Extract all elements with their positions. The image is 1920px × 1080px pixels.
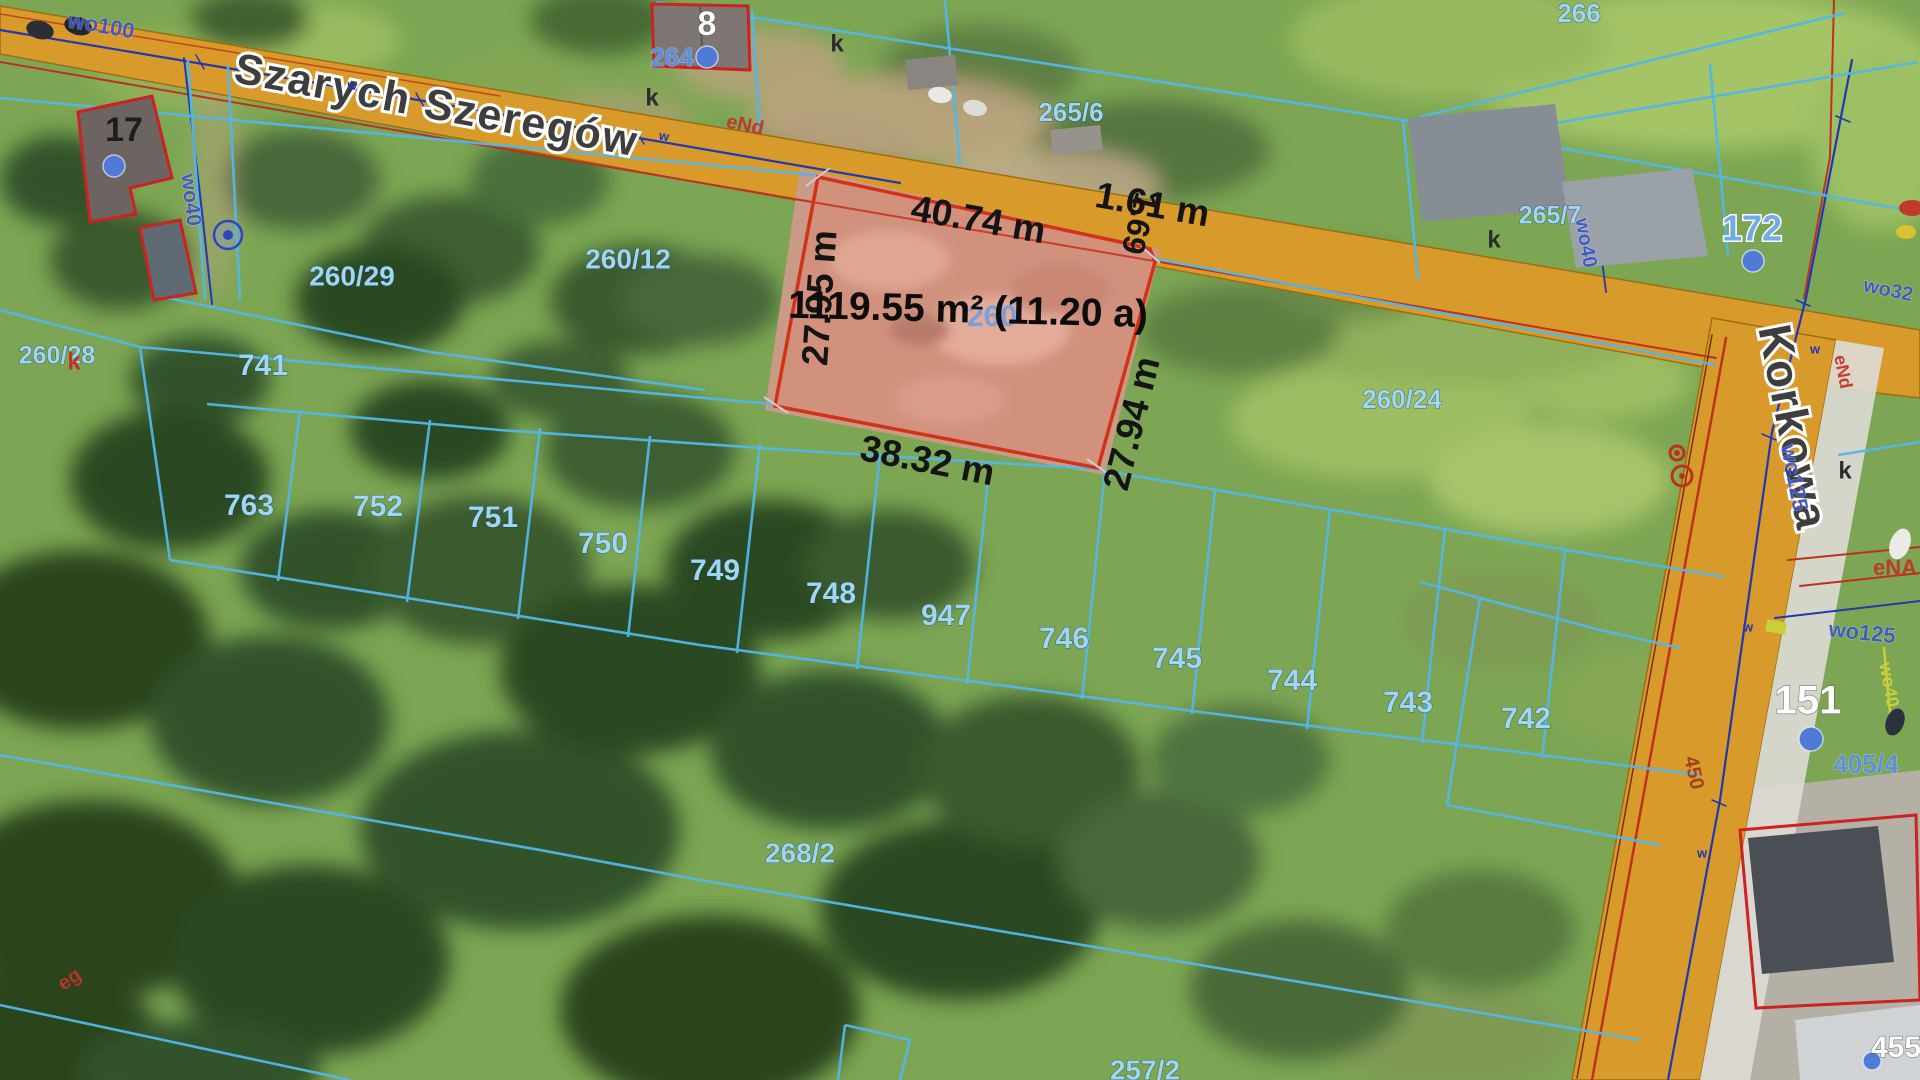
address-label-151: 151 <box>1775 679 1842 723</box>
shed-1 <box>905 55 958 90</box>
parcel-label-742: 742 <box>1501 702 1551 735</box>
parcel-label-752: 752 <box>353 490 403 523</box>
surface-marker-k-red: k <box>67 348 81 375</box>
car-6 <box>1896 225 1916 239</box>
parcel-label-741: 741 <box>238 349 288 382</box>
parcel-label-266: 266 <box>1557 0 1600 28</box>
address-dot-172 <box>1742 250 1764 272</box>
parcel-label-260-29: 260/29 <box>309 260 395 291</box>
parcel-label-260-12: 260/12 <box>585 243 671 274</box>
building-151 <box>1748 826 1894 974</box>
surface-marker-k-2: k <box>830 30 844 57</box>
address-dot-8 <box>696 46 718 68</box>
water-mark-w-5: w <box>1742 619 1754 634</box>
surface-marker-k-1: k <box>645 84 659 111</box>
parcel-label-751: 751 <box>468 501 518 534</box>
parcel-label-265-6: 265/6 <box>1038 97 1103 127</box>
water-mark-w-4: w <box>1784 463 1796 478</box>
parcel-label-750: 750 <box>578 527 628 560</box>
parcel-label-744: 744 <box>1267 664 1317 697</box>
parcel-label-746: 746 <box>1039 622 1089 655</box>
parcel-label-745: 745 <box>1152 642 1202 675</box>
address-dot-17 <box>103 155 125 177</box>
parcel-label-260-24: 260/24 <box>1362 384 1442 414</box>
address-label-8: 8 <box>698 5 717 43</box>
address-dot-151 <box>1799 727 1823 751</box>
water-mark-w-3: w <box>1809 341 1821 356</box>
shed-2 <box>1050 125 1103 155</box>
parcel-label-763: 763 <box>224 489 274 522</box>
parcel-label-260-28: 260/28 <box>19 342 96 370</box>
map-canvas[interactable]: Szarych SzeregówKorkowa26040.74 m1.61 m1… <box>0 0 1920 1080</box>
parcel-label-264: 264 <box>650 42 694 72</box>
surface-marker-k-4: k <box>1838 457 1852 484</box>
cadastral-map: Szarych SzeregówKorkowa26040.74 m1.61 m1… <box>0 0 1920 1080</box>
parcel-label-268-2: 268/2 <box>765 837 835 868</box>
water-mark-w-6: w <box>1696 845 1708 860</box>
parcel-label-743: 743 <box>1383 686 1433 719</box>
parcel-label-748: 748 <box>806 577 856 610</box>
surface-marker-k-3: k <box>1487 226 1501 253</box>
parcel-label-747: 947 <box>921 599 971 632</box>
parcel-label-405-4: 405/4 <box>1833 749 1899 779</box>
parcel-label-749: 749 <box>690 554 740 587</box>
address-label-172: 172 <box>1722 208 1782 249</box>
well-symbol <box>214 221 242 249</box>
utility-label-ena: eNA <box>1873 555 1917 580</box>
address-label-455: 455 <box>1871 1031 1920 1064</box>
parcel-label-257-2: 257/2 <box>1110 1054 1180 1080</box>
address-label-17: 17 <box>105 111 143 149</box>
